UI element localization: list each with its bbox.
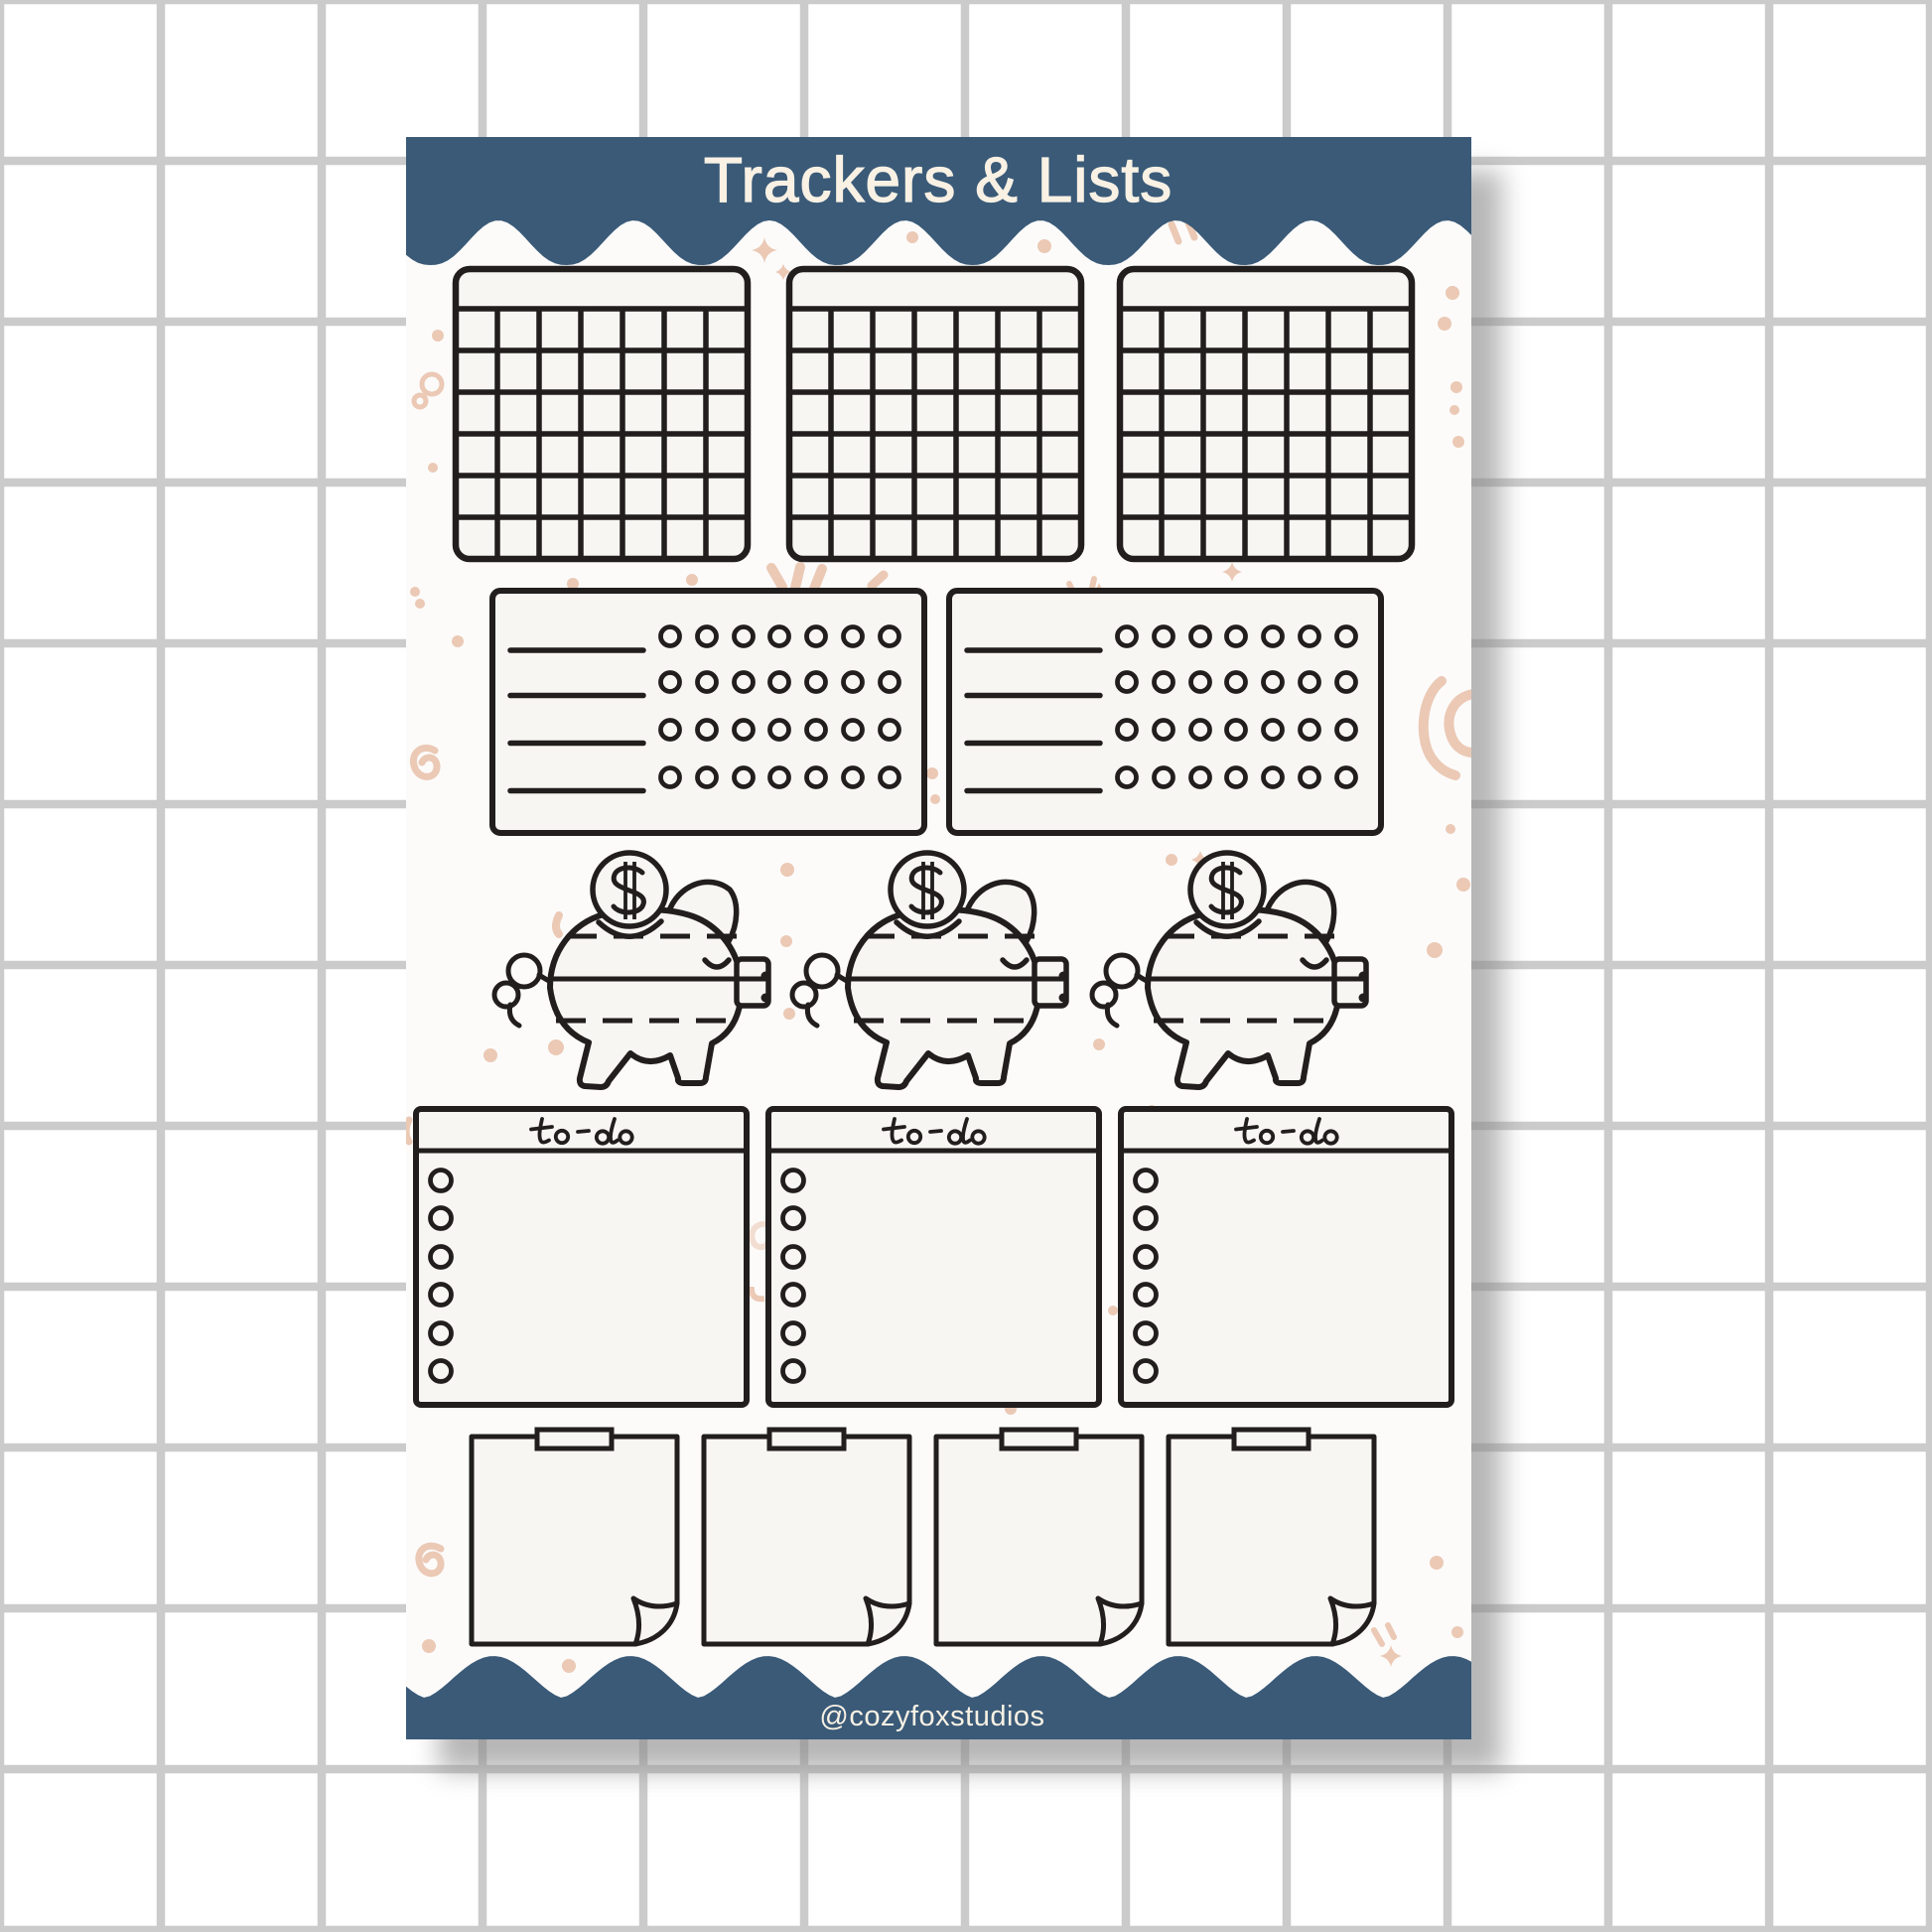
svg-text:Trackers & Lists: Trackers & Lists [704, 144, 1173, 215]
svg-text:@cozyfoxstudios: @cozyfoxstudios [819, 1701, 1044, 1732]
